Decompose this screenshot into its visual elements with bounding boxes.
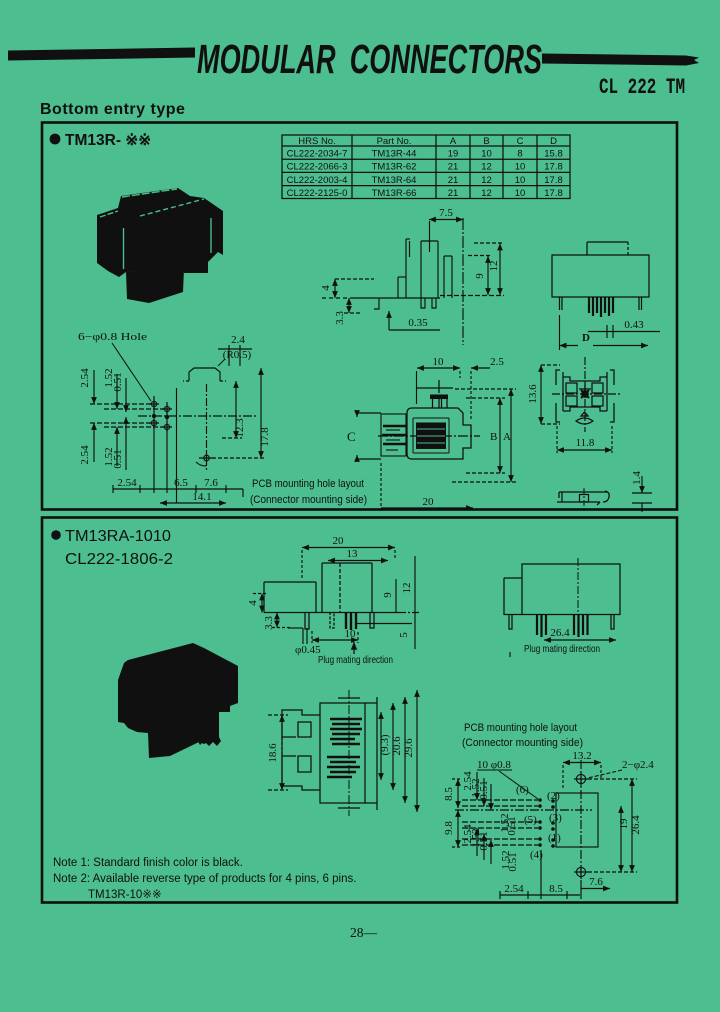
svg-text:TM13R-10※※: TM13R-10※※ (88, 889, 162, 901)
svg-text:28—: 28— (350, 925, 378, 940)
svg-text:Plug mating direction: Plug mating direction (524, 643, 600, 655)
svg-text:B: B (490, 431, 497, 443)
svg-text:13: 13 (347, 548, 359, 560)
svg-text:Bottom entry type: Bottom entry type (40, 101, 185, 118)
svg-text:2.54: 2.54 (117, 477, 137, 489)
svg-text:2.54: 2.54 (504, 883, 524, 895)
svg-text:(3): (3) (549, 812, 562, 824)
svg-text:8: 8 (517, 148, 522, 159)
svg-text:0.51: 0.51 (506, 816, 518, 835)
svg-text:HRS No.: HRS No. (298, 136, 335, 147)
svg-text:17.8: 17.8 (544, 162, 563, 173)
svg-text:13.6: 13.6 (527, 384, 539, 404)
svg-text:PCB mounting hole layout: PCB mounting hole layout (464, 722, 577, 734)
svg-text:29.6: 29.6 (403, 738, 415, 758)
svg-text:TM13R-66: TM13R-66 (372, 188, 417, 199)
svg-text:9: 9 (474, 273, 486, 279)
svg-text:A: A (450, 136, 457, 147)
svg-text:9: 9 (382, 592, 394, 598)
svg-text:Note 2: Available reverse type: Note 2: Available reverse type of produc… (53, 873, 356, 885)
svg-text:2−φ2.4: 2−φ2.4 (622, 759, 654, 771)
svg-text:20: 20 (333, 535, 345, 547)
svg-text:(2): (2) (547, 790, 560, 802)
svg-text:6.5: 6.5 (174, 477, 188, 489)
svg-text:8.5: 8.5 (549, 883, 563, 895)
svg-text:0.51: 0.51 (112, 372, 124, 391)
svg-text:CL222-2034-7: CL222-2034-7 (287, 148, 348, 159)
svg-text:9.8: 9.8 (443, 821, 455, 835)
svg-text:PCB mounting hole layout: PCB mounting hole layout (252, 478, 364, 490)
svg-text:(1): (1) (548, 832, 561, 844)
svg-text:12: 12 (488, 261, 500, 272)
svg-text:CL222-2003-4: CL222-2003-4 (287, 175, 348, 186)
svg-text:10: 10 (515, 162, 526, 173)
svg-text:0.35: 0.35 (408, 317, 428, 329)
svg-text:3.3: 3.3 (263, 616, 275, 630)
svg-text:15.8: 15.8 (544, 148, 563, 159)
svg-text:0.51: 0.51 (507, 852, 519, 871)
svg-text:1.4: 1.4 (631, 471, 643, 485)
svg-text:2.4: 2.4 (231, 334, 245, 346)
svg-text:2.5: 2.5 (490, 356, 504, 368)
svg-text:21: 21 (448, 188, 459, 199)
svg-text:10: 10 (433, 356, 445, 368)
svg-text:3.3: 3.3 (334, 311, 346, 325)
svg-text:7.6: 7.6 (204, 477, 218, 489)
svg-text:12: 12 (401, 583, 413, 594)
svg-text:(Connector mounting side): (Connector mounting side) (250, 494, 367, 506)
svg-text:Note 1: Standard finish color: Note 1: Standard finish color is black. (53, 857, 243, 869)
svg-text:19: 19 (448, 148, 459, 159)
svg-text:(R0.5): (R0.5) (223, 349, 252, 361)
svg-text:Plug mating direction: Plug mating direction (318, 654, 393, 666)
svg-text:0.51: 0.51 (112, 449, 124, 468)
svg-text:TM13R-64: TM13R-64 (372, 175, 417, 186)
svg-text:11.8: 11.8 (576, 437, 595, 449)
svg-text:B: B (483, 136, 489, 147)
svg-text:10: 10 (345, 628, 357, 640)
svg-text:19: 19 (618, 818, 630, 830)
svg-text:4: 4 (320, 285, 332, 291)
svg-text:0.51: 0.51 (478, 780, 490, 799)
svg-text:7.6: 7.6 (589, 876, 603, 888)
svg-text:10: 10 (481, 148, 492, 159)
svg-text:17.8: 17.8 (259, 427, 271, 447)
svg-text:20: 20 (423, 496, 435, 508)
svg-text:2.54: 2.54 (79, 368, 91, 388)
svg-text:C: C (517, 136, 524, 147)
svg-text:TM13R-44: TM13R-44 (372, 148, 417, 159)
svg-text:TM13R- ※※: TM13R- ※※ (65, 132, 151, 149)
svg-text:21: 21 (448, 175, 459, 186)
svg-text:C: C (347, 429, 356, 444)
svg-text:17.8: 17.8 (544, 175, 563, 186)
svg-text:14.1: 14.1 (192, 491, 211, 503)
svg-text:8.5: 8.5 (443, 787, 455, 801)
svg-text:18.6: 18.6 (267, 743, 279, 763)
svg-text:26.4: 26.4 (630, 815, 642, 835)
svg-text:(5): (5) (524, 814, 537, 826)
svg-text:10: 10 (515, 175, 526, 186)
svg-text:CL 222 TM: CL 222 TM (599, 75, 685, 100)
svg-text:5: 5 (398, 632, 410, 638)
svg-text:4: 4 (247, 600, 259, 606)
svg-text:D: D (582, 332, 590, 344)
svg-text:12: 12 (481, 162, 492, 173)
svg-text:12: 12 (481, 175, 492, 186)
svg-text:21: 21 (448, 162, 459, 173)
svg-text:(Connector mounting side): (Connector mounting side) (462, 737, 583, 749)
svg-text:12.3: 12.3 (234, 418, 246, 438)
svg-text:7.5: 7.5 (439, 207, 453, 219)
svg-text:TM13R-62: TM13R-62 (372, 162, 417, 173)
svg-text:26.4: 26.4 (550, 627, 570, 639)
svg-text:10: 10 (515, 188, 526, 199)
svg-text:0.51: 0.51 (478, 831, 490, 850)
svg-text:Part No.: Part No. (377, 136, 412, 147)
svg-text:12: 12 (481, 188, 492, 199)
svg-text:0.43: 0.43 (624, 319, 644, 331)
svg-text:17.8: 17.8 (544, 188, 563, 199)
svg-text:(6): (6) (516, 784, 529, 796)
svg-text:2.54: 2.54 (79, 445, 91, 465)
svg-text:A: A (503, 431, 511, 443)
svg-text:CL222-1806-2: CL222-1806-2 (65, 551, 173, 568)
svg-text:D: D (550, 136, 557, 147)
svg-text:13.2: 13.2 (572, 750, 591, 762)
svg-text:CL222-2125-0: CL222-2125-0 (287, 188, 348, 199)
svg-text:6−φ0.8 Hole: 6−φ0.8 Hole (78, 331, 147, 343)
svg-text:(9.3): (9.3) (379, 734, 391, 755)
svg-text:10 φ0.8: 10 φ0.8 (477, 759, 511, 771)
svg-text:20.6: 20.6 (391, 736, 403, 756)
svg-text:TM13RA-1010: TM13RA-1010 (65, 528, 171, 545)
svg-text:CL222-2066-3: CL222-2066-3 (287, 162, 348, 173)
svg-text:MODULAR CONNECTORS: MODULAR CONNECTORS (197, 36, 542, 82)
